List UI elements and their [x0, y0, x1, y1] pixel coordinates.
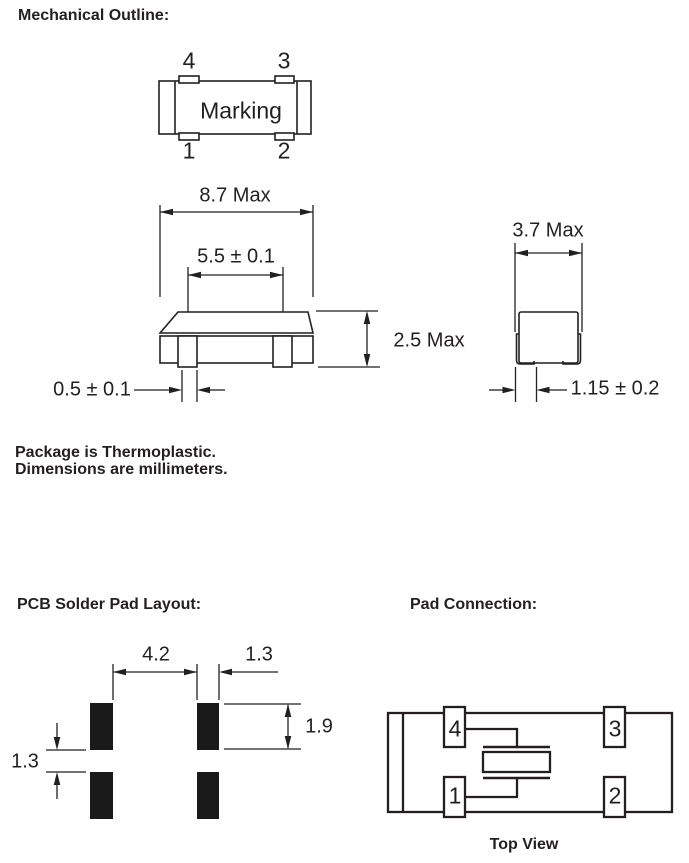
- dim-lead-width-label: 0.5 ± 0.1: [53, 379, 131, 402]
- pcb-pad-layout-drawing: [46, 664, 301, 819]
- front-view-dimension-lines: [134, 205, 380, 402]
- pad-connection-body-outline: [388, 713, 672, 812]
- front-view-body: [160, 312, 313, 367]
- pad-connection-heading: Pad Connection:: [410, 596, 537, 614]
- package-note-line-1: Package is Thermoplastic.: [15, 444, 216, 462]
- top-view-pin3-label: 3: [278, 48, 291, 75]
- pcb-vertical-gap-label: 1.3: [11, 751, 39, 774]
- pcb-pad-bottom-right: [197, 772, 219, 819]
- pcb-dimension-lines: [46, 664, 301, 799]
- pcb-pad-height-label: 1.9: [305, 716, 333, 739]
- left-lead-outline: [178, 336, 197, 367]
- dim-pad-depth-label: 1.15 ± 0.2: [571, 378, 660, 401]
- side-view-body: [517, 312, 581, 364]
- connection-pin3-label: 3: [609, 716, 622, 743]
- top-view-pin2-label: 2: [278, 138, 291, 165]
- side-body-outline: [519, 312, 578, 363]
- package-front-view-drawing: [134, 205, 380, 402]
- pcb-dimension-arrows: [54, 669, 292, 785]
- package-lid-outline: [160, 312, 313, 333]
- pcb-pad-top-right: [197, 703, 219, 750]
- pcb-solder-pads: [90, 703, 219, 819]
- pcb-pad-top-left: [90, 703, 113, 750]
- connection-pin1-label: 1: [449, 783, 462, 810]
- connection-pin2-label: 2: [609, 783, 622, 810]
- pad-3-outline: [275, 76, 294, 83]
- dim-lid-width-label: 5.5 ± 0.1: [197, 246, 275, 269]
- top-view-pin1-label: 1: [183, 138, 196, 165]
- dim-overall-width-label: 8.7 Max: [199, 185, 270, 208]
- dim-overall-height-label: 2.5 Max: [393, 330, 464, 353]
- package-note-line-2: Dimensions are millimeters.: [15, 461, 228, 479]
- mechanical-outline-heading: Mechanical Outline:: [18, 7, 169, 25]
- pad-connection-drawing: [388, 707, 672, 817]
- pcb-pad-bottom-left: [90, 772, 113, 819]
- pcb-pad-layout-heading: PCB Solder Pad Layout:: [17, 596, 201, 614]
- dim-overall-depth-label: 3.7 Max: [512, 220, 583, 243]
- pcb-pad-width-label: 1.3: [245, 644, 273, 667]
- datasheet-mechanical-page: Mechanical Outline: Package is Thermopla…: [0, 0, 689, 863]
- right-lead-outline: [273, 336, 292, 367]
- package-side-view-drawing: [489, 243, 582, 402]
- pcb-horizontal-gap-label: 4.2: [142, 644, 170, 667]
- mechanical-drawing-svg: [0, 0, 689, 863]
- top-view-caption: Top View: [490, 836, 559, 854]
- pad-4-outline: [179, 76, 199, 83]
- top-view-pin4-label: 4: [183, 48, 196, 75]
- marking-label: Marking: [200, 98, 282, 125]
- connection-pin4-label: 4: [449, 716, 462, 743]
